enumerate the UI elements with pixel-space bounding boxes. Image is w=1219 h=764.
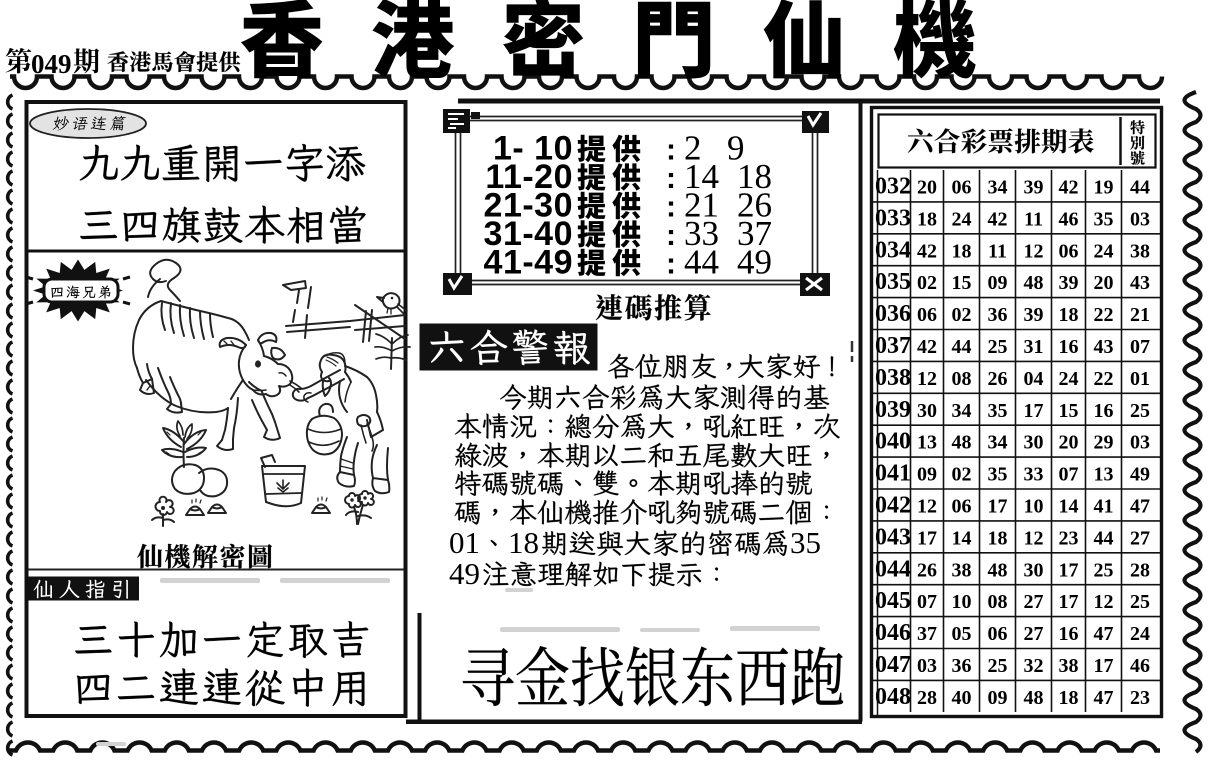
svg-text:38: 38 xyxy=(1059,655,1079,677)
svg-text:07: 07 xyxy=(1059,464,1079,486)
svg-text:07: 07 xyxy=(1130,336,1150,358)
svg-text:17: 17 xyxy=(917,527,937,549)
svg-text:29: 29 xyxy=(1094,432,1114,454)
svg-text:032: 032 xyxy=(875,174,911,200)
svg-text:09: 09 xyxy=(988,687,1008,709)
svg-text:07: 07 xyxy=(917,591,937,613)
svg-text:44: 44 xyxy=(684,243,719,282)
svg-text:03: 03 xyxy=(1130,208,1150,230)
svg-text:42: 42 xyxy=(1059,177,1079,199)
svg-text:11: 11 xyxy=(988,240,1007,262)
svg-text:38: 38 xyxy=(1130,240,1150,262)
svg-text:23: 23 xyxy=(1059,527,1079,549)
svg-text:44: 44 xyxy=(952,336,972,358)
svg-text:05: 05 xyxy=(952,623,972,645)
svg-text:038: 038 xyxy=(875,365,911,391)
svg-text:24: 24 xyxy=(1059,368,1079,390)
svg-text:24: 24 xyxy=(952,208,972,230)
svg-text:25: 25 xyxy=(988,655,1008,677)
svg-text:30: 30 xyxy=(1024,432,1044,454)
svg-text:31: 31 xyxy=(1024,336,1044,358)
svg-text:08: 08 xyxy=(988,591,1008,613)
svg-text:44: 44 xyxy=(1130,177,1150,199)
svg-text:27: 27 xyxy=(1130,527,1150,549)
svg-text:20: 20 xyxy=(1094,272,1114,294)
svg-text:036: 036 xyxy=(875,301,911,327)
svg-text:24: 24 xyxy=(1130,623,1150,645)
svg-text:18: 18 xyxy=(917,208,937,230)
svg-text:48: 48 xyxy=(1024,687,1044,709)
svg-text:08: 08 xyxy=(952,368,972,390)
svg-text:26: 26 xyxy=(988,368,1008,390)
svg-text:044: 044 xyxy=(875,556,911,582)
svg-text:27: 27 xyxy=(1024,591,1044,613)
svg-text:18: 18 xyxy=(952,240,972,262)
svg-text:43: 43 xyxy=(1130,272,1150,294)
svg-text:35: 35 xyxy=(790,525,821,560)
svg-text:25: 25 xyxy=(1094,559,1114,581)
svg-text:04: 04 xyxy=(1024,368,1044,390)
svg-text:16: 16 xyxy=(1094,400,1114,422)
svg-text:37: 37 xyxy=(917,623,937,645)
svg-text:16: 16 xyxy=(1059,623,1079,645)
svg-text:35: 35 xyxy=(1094,208,1114,230)
svg-text:19: 19 xyxy=(1094,177,1114,199)
svg-text:35: 35 xyxy=(988,400,1008,422)
svg-text:38: 38 xyxy=(952,559,972,581)
svg-text:06: 06 xyxy=(952,177,972,199)
svg-text:27: 27 xyxy=(1024,623,1044,645)
svg-text:28: 28 xyxy=(917,687,937,709)
svg-text:09: 09 xyxy=(917,464,937,486)
svg-text:045: 045 xyxy=(875,588,911,614)
svg-text:39: 39 xyxy=(1059,272,1079,294)
svg-text:035: 035 xyxy=(875,269,911,295)
svg-text:046: 046 xyxy=(875,620,911,646)
svg-text:44: 44 xyxy=(1094,527,1114,549)
svg-text:18: 18 xyxy=(1059,304,1079,326)
svg-text:12: 12 xyxy=(917,496,937,518)
svg-text:15: 15 xyxy=(1059,400,1079,422)
svg-text:49: 49 xyxy=(737,243,772,282)
svg-text::: : xyxy=(666,248,676,281)
svg-text:13: 13 xyxy=(917,432,937,454)
svg-text:12: 12 xyxy=(1024,527,1044,549)
svg-text:042: 042 xyxy=(875,493,911,519)
svg-text:048: 048 xyxy=(875,684,911,710)
svg-text:34: 34 xyxy=(988,177,1008,199)
svg-text:18: 18 xyxy=(1059,687,1079,709)
svg-text:40: 40 xyxy=(952,687,972,709)
svg-text:47: 47 xyxy=(1094,623,1114,645)
svg-text:03: 03 xyxy=(917,655,937,677)
svg-text:17: 17 xyxy=(1059,591,1079,613)
svg-text:36: 36 xyxy=(952,655,972,677)
svg-text:043: 043 xyxy=(875,524,911,550)
svg-text:48: 48 xyxy=(1024,272,1044,294)
svg-text:12: 12 xyxy=(1094,591,1114,613)
svg-text:18: 18 xyxy=(508,525,539,560)
svg-text:06: 06 xyxy=(1059,240,1079,262)
svg-text:01: 01 xyxy=(449,525,480,560)
svg-text:02: 02 xyxy=(952,304,972,326)
svg-text:06: 06 xyxy=(917,304,937,326)
svg-text:22: 22 xyxy=(1094,304,1114,326)
svg-text:41-49: 41-49 xyxy=(484,244,573,282)
svg-text:47: 47 xyxy=(1094,687,1114,709)
svg-text:49: 49 xyxy=(449,556,480,591)
svg-text:03: 03 xyxy=(1130,432,1150,454)
svg-text:02: 02 xyxy=(917,272,937,294)
svg-text:46: 46 xyxy=(1059,208,1079,230)
svg-text:02: 02 xyxy=(952,464,972,486)
svg-text:35: 35 xyxy=(988,464,1008,486)
svg-text:037: 037 xyxy=(875,333,911,359)
svg-text:34: 34 xyxy=(988,432,1008,454)
svg-text:47: 47 xyxy=(1130,496,1150,518)
svg-text:09: 09 xyxy=(988,272,1008,294)
svg-text:23: 23 xyxy=(1130,687,1150,709)
svg-text:30: 30 xyxy=(917,400,937,422)
svg-text:25: 25 xyxy=(1130,591,1150,613)
svg-text:10: 10 xyxy=(952,591,972,613)
svg-text:11: 11 xyxy=(1024,208,1043,230)
svg-text:10: 10 xyxy=(1024,496,1044,518)
svg-text:42: 42 xyxy=(988,208,1008,230)
svg-text:17: 17 xyxy=(1059,559,1079,581)
svg-text:14: 14 xyxy=(952,527,972,549)
svg-text:047: 047 xyxy=(875,652,911,678)
svg-text:22: 22 xyxy=(1094,368,1114,390)
svg-text:12: 12 xyxy=(1024,240,1044,262)
svg-text:06: 06 xyxy=(988,623,1008,645)
svg-text:36: 36 xyxy=(988,304,1008,326)
svg-text:26: 26 xyxy=(917,559,937,581)
svg-text:39: 39 xyxy=(1024,304,1044,326)
svg-text:039: 039 xyxy=(875,397,911,423)
svg-text:20: 20 xyxy=(917,177,937,199)
svg-text:034: 034 xyxy=(875,237,911,263)
svg-text:24: 24 xyxy=(1094,240,1114,262)
svg-text:15: 15 xyxy=(952,272,972,294)
svg-text:041: 041 xyxy=(875,461,911,487)
svg-text:18: 18 xyxy=(988,527,1008,549)
svg-text:14: 14 xyxy=(1059,496,1079,518)
svg-text:39: 39 xyxy=(1024,177,1044,199)
svg-text:41: 41 xyxy=(1094,496,1114,518)
svg-text:33: 33 xyxy=(1024,464,1044,486)
svg-text:34: 34 xyxy=(952,400,972,422)
svg-text:040: 040 xyxy=(875,429,911,455)
svg-text:49: 49 xyxy=(1130,464,1150,486)
svg-text:46: 46 xyxy=(1130,655,1150,677)
svg-text:033: 033 xyxy=(875,205,911,231)
svg-text:32: 32 xyxy=(1024,655,1044,677)
svg-text:48: 48 xyxy=(988,559,1008,581)
svg-text:17: 17 xyxy=(1094,655,1114,677)
svg-text:01: 01 xyxy=(1130,368,1150,390)
svg-text:28: 28 xyxy=(1130,559,1150,581)
svg-text:25: 25 xyxy=(1130,400,1150,422)
svg-text:17: 17 xyxy=(988,496,1008,518)
svg-text:30: 30 xyxy=(1024,559,1044,581)
svg-text:43: 43 xyxy=(1094,336,1114,358)
svg-text:42: 42 xyxy=(917,336,937,358)
svg-text:16: 16 xyxy=(1059,336,1079,358)
svg-text:21: 21 xyxy=(1130,304,1150,326)
svg-text:17: 17 xyxy=(1024,400,1044,422)
svg-text:049: 049 xyxy=(31,49,72,79)
svg-text:06: 06 xyxy=(952,496,972,518)
svg-text:48: 48 xyxy=(952,432,972,454)
svg-text:25: 25 xyxy=(988,336,1008,358)
svg-text:20: 20 xyxy=(1059,432,1079,454)
svg-text:12: 12 xyxy=(917,368,937,390)
svg-text:42: 42 xyxy=(917,240,937,262)
svg-text:13: 13 xyxy=(1094,464,1114,486)
